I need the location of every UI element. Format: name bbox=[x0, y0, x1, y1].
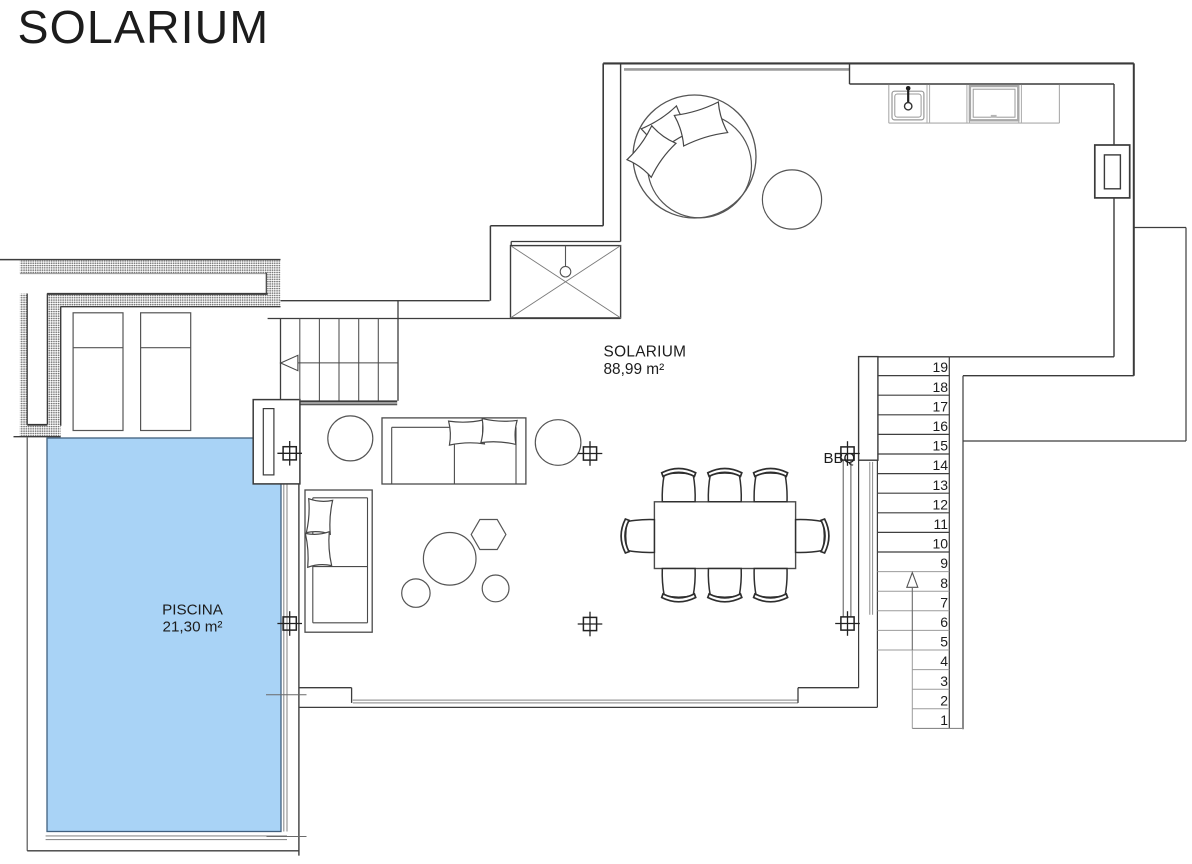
svg-text:7: 7 bbox=[940, 594, 948, 610]
svg-text:8: 8 bbox=[940, 575, 948, 591]
svg-text:10: 10 bbox=[933, 536, 949, 552]
svg-text:21,30 m²: 21,30 m² bbox=[163, 618, 223, 635]
svg-text:13: 13 bbox=[933, 477, 949, 493]
svg-text:3: 3 bbox=[940, 673, 948, 689]
svg-text:88,99 m²: 88,99 m² bbox=[604, 361, 665, 378]
svg-text:4: 4 bbox=[940, 653, 948, 669]
svg-text:11: 11 bbox=[934, 516, 949, 532]
svg-text:1: 1 bbox=[940, 712, 948, 728]
svg-text:SOLARIUM: SOLARIUM bbox=[604, 344, 687, 361]
svg-text:9: 9 bbox=[940, 555, 948, 571]
svg-text:14: 14 bbox=[933, 457, 949, 473]
svg-text:18: 18 bbox=[933, 379, 949, 395]
svg-text:SOLARIUM: SOLARIUM bbox=[18, 1, 270, 53]
svg-text:6: 6 bbox=[940, 614, 948, 630]
svg-text:5: 5 bbox=[940, 634, 948, 650]
svg-text:PISCINA: PISCINA bbox=[162, 601, 224, 618]
svg-text:16: 16 bbox=[933, 418, 949, 434]
svg-text:2: 2 bbox=[940, 692, 948, 708]
svg-text:15: 15 bbox=[933, 438, 949, 454]
svg-text:12: 12 bbox=[933, 496, 949, 512]
svg-text:19: 19 bbox=[933, 359, 949, 375]
svg-text:17: 17 bbox=[933, 398, 949, 414]
